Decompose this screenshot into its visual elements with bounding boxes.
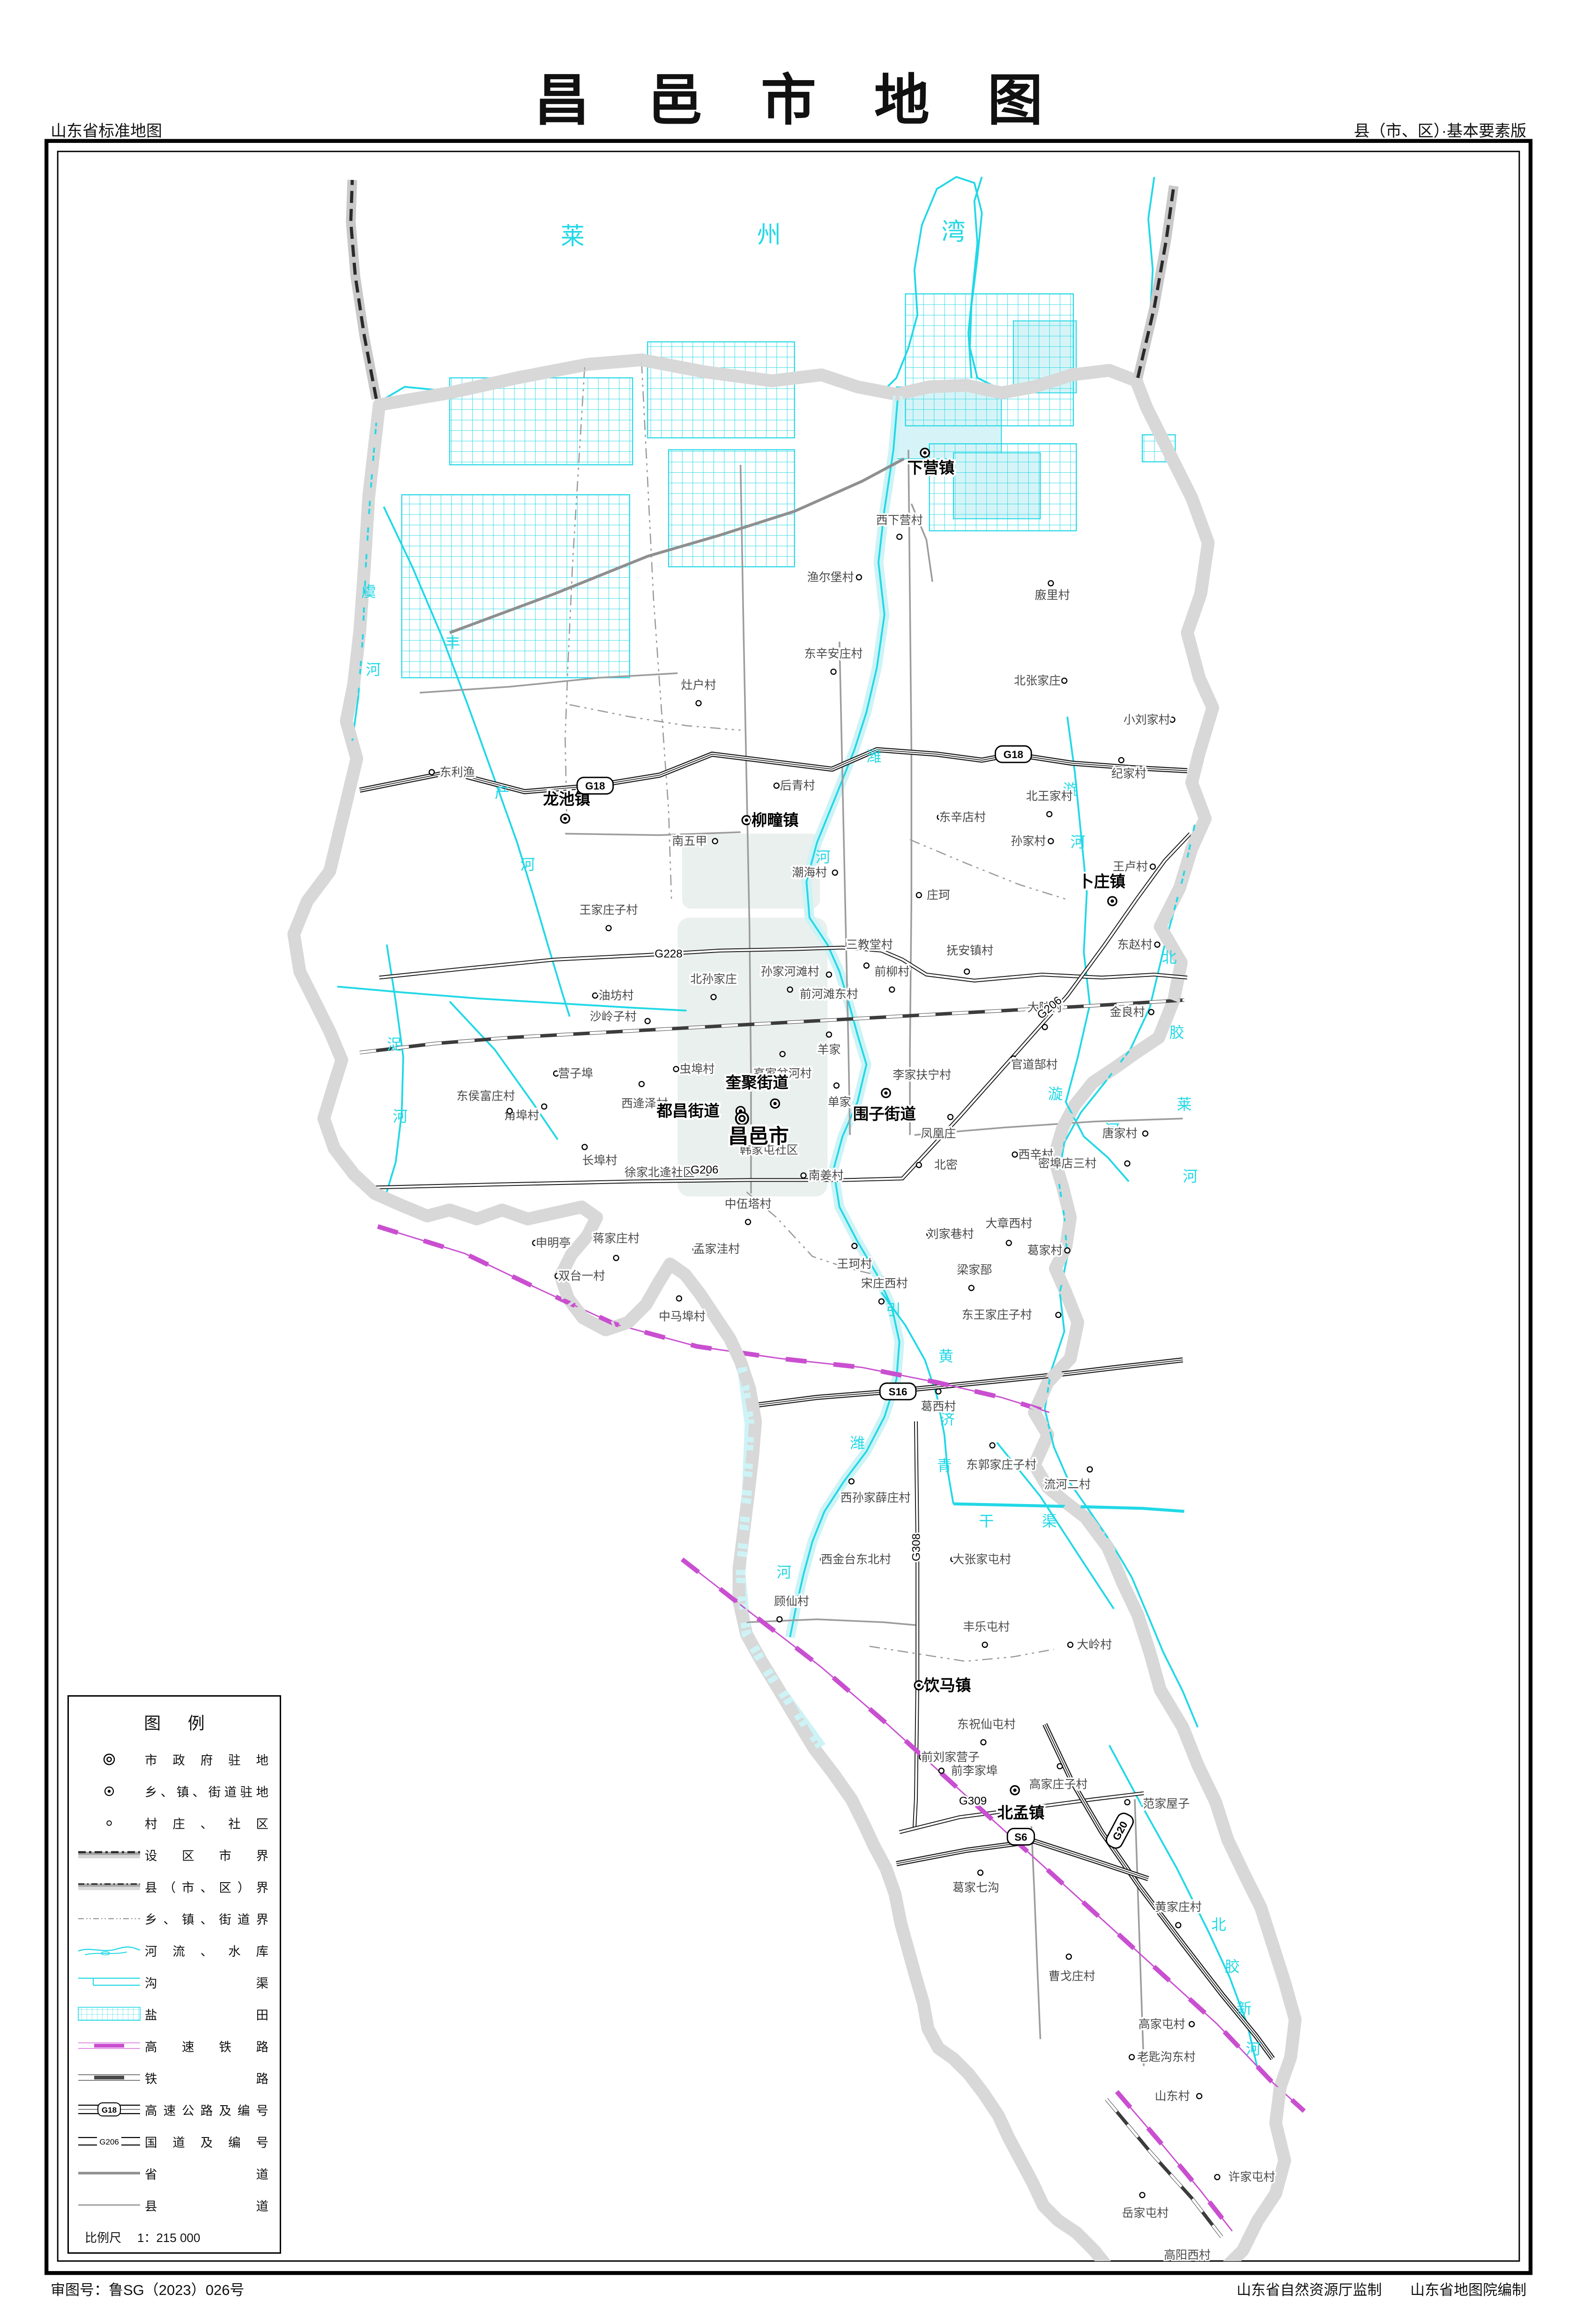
village-marker: [1129, 2055, 1134, 2060]
village-marker: [711, 995, 716, 1000]
sea-name-char: 州: [757, 221, 781, 248]
river-name-char: 河: [1071, 834, 1086, 850]
village-label: 顾仙村: [774, 1595, 809, 1608]
village-label: 许家屯村: [1228, 2171, 1275, 2184]
village-marker: [1125, 1800, 1130, 1805]
village-label: 南姜村: [809, 1169, 844, 1182]
village-marker: [964, 969, 969, 974]
national-road-icon: G206: [74, 2131, 145, 2151]
legend-item: 设区市界: [74, 1839, 275, 1871]
village-label: 东祝仙屯村: [957, 1718, 1016, 1731]
canal-icon: [74, 1973, 145, 1992]
legend-item: 省道: [74, 2157, 275, 2189]
village-label: 范家屋子: [1143, 1797, 1190, 1810]
village-marker: [1006, 1240, 1012, 1245]
town-seat-icon: [74, 1781, 145, 1801]
river-name-char: 青: [937, 1457, 952, 1474]
village-marker: [879, 1299, 884, 1304]
village-marker: [429, 770, 434, 775]
village-marker: [916, 1162, 922, 1168]
village-label: 申明亭: [536, 1236, 571, 1250]
legend-item: 高速铁路: [74, 2030, 275, 2062]
river-name-char: 河: [1183, 1168, 1198, 1185]
legend: 图例 市政府驻地乡、镇、街道驻地村庄、社区设区市界县（市、区）界乡、镇、街道界河…: [67, 1695, 281, 2254]
village-marker: [981, 1740, 986, 1745]
village-marker: [897, 534, 902, 539]
river-name-char: 河: [520, 856, 535, 873]
legend-item: 县（市、区）界: [74, 1871, 275, 1903]
village-marker: [1057, 1764, 1063, 1769]
village-label: 官道郜村: [1011, 1058, 1058, 1071]
town-label: 柳疃镇: [751, 812, 799, 829]
footer-publisher: 山东省地图院编制: [1410, 2282, 1526, 2298]
village-label: 灶户村: [681, 679, 716, 692]
road-badge: G18: [577, 777, 613, 794]
village-marker: [1065, 1248, 1070, 1253]
road-number-labels: G18G18S16S6G20G228G206G206G308G309: [577, 746, 1136, 1850]
river-name-char: 浞: [387, 1036, 402, 1053]
legend-item: 乡、镇、街道界: [74, 1903, 275, 1935]
village-label: 北王家村: [1026, 790, 1073, 803]
town-label: 下营镇: [908, 459, 955, 477]
village-label: 羊家: [817, 1043, 841, 1056]
village-label: 孙家村: [1011, 835, 1046, 848]
village-marker: [777, 1617, 782, 1622]
village-label: 东郭家庄子村: [967, 1459, 1037, 1472]
town-seat-marker-dot: [917, 1683, 921, 1687]
scale-value: 1：215 000: [137, 2228, 200, 2246]
village-label: 廒里村: [1035, 589, 1070, 602]
village-marker: [1143, 1131, 1148, 1136]
village-marker: [1012, 1152, 1018, 1157]
village-label: 蒋家庄村: [593, 1232, 640, 1245]
road-number-label: G228: [655, 948, 682, 961]
svg-text:G18: G18: [1004, 749, 1023, 760]
village-label: 大章西村: [985, 1217, 1032, 1230]
legend-item-label: 沟渠: [145, 1973, 268, 1991]
village-marker: [826, 1032, 832, 1037]
river-name-char: 北: [1162, 949, 1177, 966]
legend-item-label: 国道及编号: [145, 2132, 268, 2151]
village-label: 老匙沟东村: [1137, 2051, 1196, 2064]
legend-item: 县道: [74, 2189, 275, 2221]
legend-item-label: 省道: [145, 2164, 268, 2182]
legend-item-label: 市政府驻地: [145, 1750, 268, 1768]
village-marker: [864, 963, 869, 968]
village-marker: [801, 1173, 806, 1178]
village-marker: [1125, 1161, 1130, 1166]
road-badge: G20: [1104, 1811, 1136, 1850]
village-marker: [978, 1870, 983, 1875]
village-marker: [582, 1145, 587, 1150]
town-label: 奎聚街道: [725, 1074, 789, 1092]
village-marker: [969, 1285, 974, 1290]
road-number-label: G308: [910, 1534, 922, 1561]
svg-text:G18: G18: [585, 780, 605, 792]
village-label: 葛家七沟: [952, 1881, 999, 1894]
village-marker: [1066, 1954, 1071, 1959]
scale-label: 比例尺: [85, 2228, 121, 2246]
map-content: 莱州湾 虞河浞河丰产河潍河潍河漩河漩河北胶莱河引黄济青干渠北胶新河 西下营村渔尔…: [294, 177, 1304, 2303]
legend-item: 铁路: [74, 2062, 275, 2093]
town-seat-marker-dot: [884, 1091, 887, 1095]
village-label: 黄家庄村: [1155, 1901, 1202, 1914]
village-marker: [990, 1443, 995, 1448]
village-label: 岳家屯村: [1122, 2207, 1169, 2220]
hsr-icon: [74, 2036, 145, 2056]
village-marker: [639, 1081, 644, 1087]
city-label: 昌邑市: [728, 1125, 789, 1148]
road-badge: S6: [1007, 1828, 1034, 1845]
river-name-char: 河: [816, 849, 831, 865]
village-label: 高阳西村: [1164, 2249, 1211, 2262]
village-marker: [1197, 2093, 1202, 2099]
town-seat-marker-dot: [745, 819, 748, 822]
legend-item-label: 乡、镇、街道界: [145, 1909, 268, 1928]
village-marker: [1215, 2175, 1220, 2180]
salt-pans: [402, 294, 1175, 678]
legend-item: 沟渠: [74, 1966, 275, 1998]
village-label: 虫埠村: [679, 1063, 714, 1076]
village-label: 东侯富庄村: [456, 1090, 515, 1103]
legend-item-label: 乡、镇、街道驻地: [145, 1782, 268, 1800]
village-label: 刘家巷村: [927, 1228, 974, 1241]
village-label: 王珂村: [837, 1258, 872, 1271]
river-name-char: 河: [776, 1564, 791, 1580]
river-name-char: 胶: [1225, 1958, 1240, 1975]
village-label: 葛西村: [921, 1400, 956, 1413]
village-marker: [788, 987, 793, 992]
village-marker: [1048, 581, 1053, 586]
road-badge: S16: [880, 1383, 916, 1400]
river-name-char: 渠: [1042, 1513, 1057, 1530]
village-label: 中伍塔村: [725, 1198, 772, 1211]
page: 昌邑市地图 山东省标准地图 县（市、区）·基本要素版: [0, 0, 1577, 2324]
saltpan-icon: [74, 2004, 145, 2024]
village-marker: [745, 1220, 751, 1225]
village-label: 凤凰庄: [921, 1127, 956, 1140]
village-marker: [939, 1768, 944, 1773]
village-label: 前柳村: [874, 965, 909, 978]
sea-name-char: 湾: [941, 218, 965, 245]
legend-item-label: 盐田: [145, 2005, 268, 2023]
legend-item-label: 铁路: [145, 2069, 268, 2087]
village-label: 东辛安庄村: [804, 648, 863, 661]
village-label: 高家屯村: [1138, 2018, 1185, 2031]
village-marker: [677, 1296, 682, 1301]
river-name-char: 济: [940, 1411, 955, 1428]
village-label: 前刘家营子: [921, 1751, 980, 1764]
river-name-char: 新: [1237, 2000, 1252, 2017]
village-marker: [936, 1389, 941, 1394]
village-label: 高家庄子村: [1029, 1778, 1088, 1791]
legend-item-label: 高速铁路: [145, 2037, 268, 2055]
village-label: 金良村: [1110, 1006, 1145, 1019]
county-road-icon: [74, 2195, 145, 2215]
village-label: 密埠店三村: [1038, 1157, 1097, 1170]
village-label: 王家庄子村: [580, 904, 638, 917]
village-marker: [780, 1051, 785, 1057]
village-marker: [831, 669, 836, 674]
legend-item: G18高速公路及编号: [74, 2093, 275, 2125]
river-name-char: 莱: [1177, 1096, 1192, 1113]
village-marker: [507, 1109, 512, 1114]
legend-title: 图例: [74, 1710, 275, 1734]
footer-credits: 山东省自然资源厅监制 山东省地图院编制: [1212, 2278, 1526, 2299]
road-badge: G18: [996, 746, 1032, 762]
village-label: 孟家洼村: [693, 1243, 740, 1256]
river-name-char: 引: [886, 1301, 901, 1318]
village-label: 东赵村: [1117, 938, 1153, 951]
village-label: 渔尔堡村: [807, 571, 854, 584]
village-label: 油坊村: [599, 989, 634, 1002]
village-label: 长埠村: [582, 1154, 617, 1167]
city-seat-marker-inner: [739, 1116, 745, 1121]
village-marker: [852, 1244, 857, 1249]
village-label: 营子埠: [558, 1067, 593, 1080]
village-marker: [713, 839, 718, 844]
village-label: 唐家村: [1102, 1127, 1138, 1140]
village-marker: [674, 1066, 679, 1072]
village-label: 前河滩东村: [800, 988, 858, 1001]
village-label: 梁家郚: [957, 1264, 992, 1277]
town-label: 饮马镇: [924, 1676, 971, 1694]
village-marker: [1150, 864, 1155, 869]
village-marker: [645, 1019, 650, 1024]
legend-item-label: 县道: [145, 2196, 268, 2214]
town-label: 都昌街道: [656, 1102, 720, 1120]
village-marker: [593, 993, 598, 998]
village-marker: [1170, 717, 1175, 723]
scale-bar: 比例尺 1：215 000: [85, 2228, 275, 2246]
svg-text:G206: G206: [99, 2138, 119, 2146]
village-label: 北张家庄: [1014, 674, 1061, 687]
village-marker: [1068, 1642, 1073, 1647]
village-label: 曹戈庄村: [1049, 1970, 1095, 1983]
village-label: 东辛店村: [939, 811, 986, 824]
legend-item-label: 县（市、区）界: [145, 1877, 268, 1896]
legend-items: 市政府驻地乡、镇、街道驻地村庄、社区设区市界县（市、区）界乡、镇、街道界河流、水…: [74, 1743, 275, 2221]
village-label: 单家: [828, 1095, 851, 1109]
legend-item-label: 设区市界: [145, 1846, 268, 1864]
village-label: 孙家河滩村: [761, 965, 819, 978]
expressway-icon: G18: [74, 2100, 145, 2119]
railway-icon: [74, 2068, 145, 2087]
village-marker: [1175, 1922, 1181, 1928]
village-label: 西孙家薛庄村: [841, 1491, 911, 1505]
river-name-char: 潍: [866, 748, 881, 765]
village-marker: [696, 700, 701, 706]
village-marker: [1042, 1025, 1048, 1030]
village-label: 中马埠村: [659, 1310, 706, 1323]
village-marker: [1048, 839, 1053, 844]
village-marker: [1140, 2192, 1145, 2197]
footer-supervisor: 山东省自然资源厅监制: [1236, 2282, 1382, 2298]
village-label: 纪家村: [1111, 767, 1146, 781]
river-name-char: 干: [979, 1513, 994, 1530]
village-marker: [606, 925, 611, 931]
river-name-char: 产: [495, 784, 510, 801]
village-marker: [614, 1255, 619, 1260]
village-marker: [849, 1479, 854, 1484]
village-marker: [856, 575, 862, 580]
village-marker: [1155, 942, 1160, 947]
village-marker: [826, 972, 832, 977]
river-name-char: 漩: [1048, 1086, 1063, 1102]
village-label: 西下营村: [876, 514, 923, 527]
village-marker: [1119, 758, 1124, 763]
village-label: 南五甲: [672, 835, 707, 848]
river-name-char: 北: [1211, 1916, 1226, 1933]
village-label: 东王家庄子村: [962, 1309, 1032, 1322]
village-marker: [774, 783, 779, 788]
road-number-label: G309: [959, 1795, 987, 1808]
village-marker: [1047, 812, 1052, 817]
village-label: 大岭村: [1077, 1639, 1112, 1652]
river-name-char: 黄: [938, 1348, 953, 1365]
village-label: 北密: [934, 1159, 958, 1172]
provincial-road-icon: [74, 2163, 145, 2183]
svg-text:G18: G18: [102, 2106, 117, 2115]
river-name-char: 虞: [361, 583, 376, 600]
river-name-char: 河: [366, 661, 381, 678]
village-label: 沙岭子村: [590, 1010, 637, 1023]
town-label: 卜庄镇: [1078, 873, 1125, 891]
town-seat-marker-dot: [564, 817, 567, 820]
village-marker: [982, 1642, 988, 1647]
legend-item-label: 高速公路及编号: [145, 2101, 268, 2119]
town-label: 围子街道: [853, 1105, 916, 1123]
river-name-char: 胶: [1169, 1024, 1184, 1041]
village-marker: [1087, 1467, 1093, 1472]
legend-item: 盐田: [74, 1998, 275, 2030]
river-name-char: 河: [393, 1108, 408, 1125]
road-number-label: G206: [691, 1163, 718, 1176]
legend-item: 乡、镇、街道驻地: [74, 1775, 275, 1807]
legend-item: G206国道及编号: [74, 2125, 275, 2157]
village-label: 小刘家村: [1123, 713, 1170, 726]
village-marker: [1056, 1312, 1061, 1318]
village-label: 丰乐屯村: [963, 1620, 1010, 1633]
river-name-char: 河: [1246, 2041, 1261, 2057]
village-marker: [1149, 1010, 1154, 1015]
town-label: 北孟镇: [997, 1804, 1045, 1822]
village-label: 后青村: [780, 779, 815, 792]
minor-roads: [420, 450, 1183, 2066]
sea-name-char: 莱: [561, 223, 585, 250]
village-label: 李家扶宁村: [893, 1069, 951, 1082]
village-marker: [916, 893, 922, 898]
village-label: 北孙家庄: [690, 973, 737, 986]
village-marker: [1189, 2022, 1194, 2027]
county-border-icon: [74, 1877, 145, 1897]
village-label: 大张家屯村: [952, 1553, 1011, 1566]
village-marker: [948, 1115, 953, 1120]
village-label: 葛家村: [1027, 1244, 1063, 1257]
town-seat-marker-dot: [923, 451, 926, 454]
township-border-icon: [74, 1909, 145, 1929]
village-marker: [889, 987, 894, 992]
svg-text:S6: S6: [1014, 1831, 1027, 1843]
village-marker: [834, 1083, 839, 1088]
village-marker: [542, 1104, 547, 1109]
village-label: 流河二村: [1044, 1478, 1091, 1491]
town-seat-marker-dot: [774, 1102, 777, 1105]
village-label: 宋庄西村: [861, 1277, 908, 1290]
high-speed-rail: [378, 1227, 1304, 2231]
legend-item-label: 河流、水库: [145, 1941, 268, 1959]
river-name-char: 潍: [850, 1435, 865, 1452]
river-icon: [74, 1941, 145, 1960]
town-seat-marker-dot: [1013, 1788, 1016, 1792]
village-label: 双台一村: [558, 1270, 605, 1283]
river-name-char: 丰: [445, 634, 460, 651]
village-label: 东利渔: [439, 766, 475, 779]
village-marker: [833, 870, 838, 875]
village-label: 三教堂村: [846, 938, 893, 951]
legend-item: 市政府驻地: [74, 1743, 275, 1775]
sea-labels: 莱州湾: [561, 218, 966, 250]
village-label: 潮海村: [792, 866, 827, 879]
village-label: 王卢村: [1113, 860, 1148, 873]
legend-item-label: 村庄、社区: [145, 1814, 268, 1832]
legend-item: 村庄、社区: [74, 1807, 275, 1839]
legend-item: 河流、水库: [74, 1935, 275, 1966]
village-label: 山东村: [1155, 2090, 1190, 2103]
town-seat-marker-dot: [1110, 900, 1114, 903]
village-label: 抚安镇村: [946, 944, 993, 957]
village-label: 前李家埠: [951, 1765, 998, 1778]
village-label: 庄珂: [927, 889, 950, 902]
village-label: 徐家北逄社区: [625, 1166, 695, 1179]
footer-approval-number: 审图号：鲁SG（2023）026号: [51, 2278, 244, 2299]
village-icon: [74, 1813, 145, 1833]
village-marker: [1062, 678, 1067, 683]
village-label: 西金台东北村: [821, 1553, 891, 1566]
city-border-icon: [74, 1845, 145, 1865]
svg-text:S16: S16: [889, 1386, 908, 1398]
city-seat-icon: [74, 1750, 145, 1769]
